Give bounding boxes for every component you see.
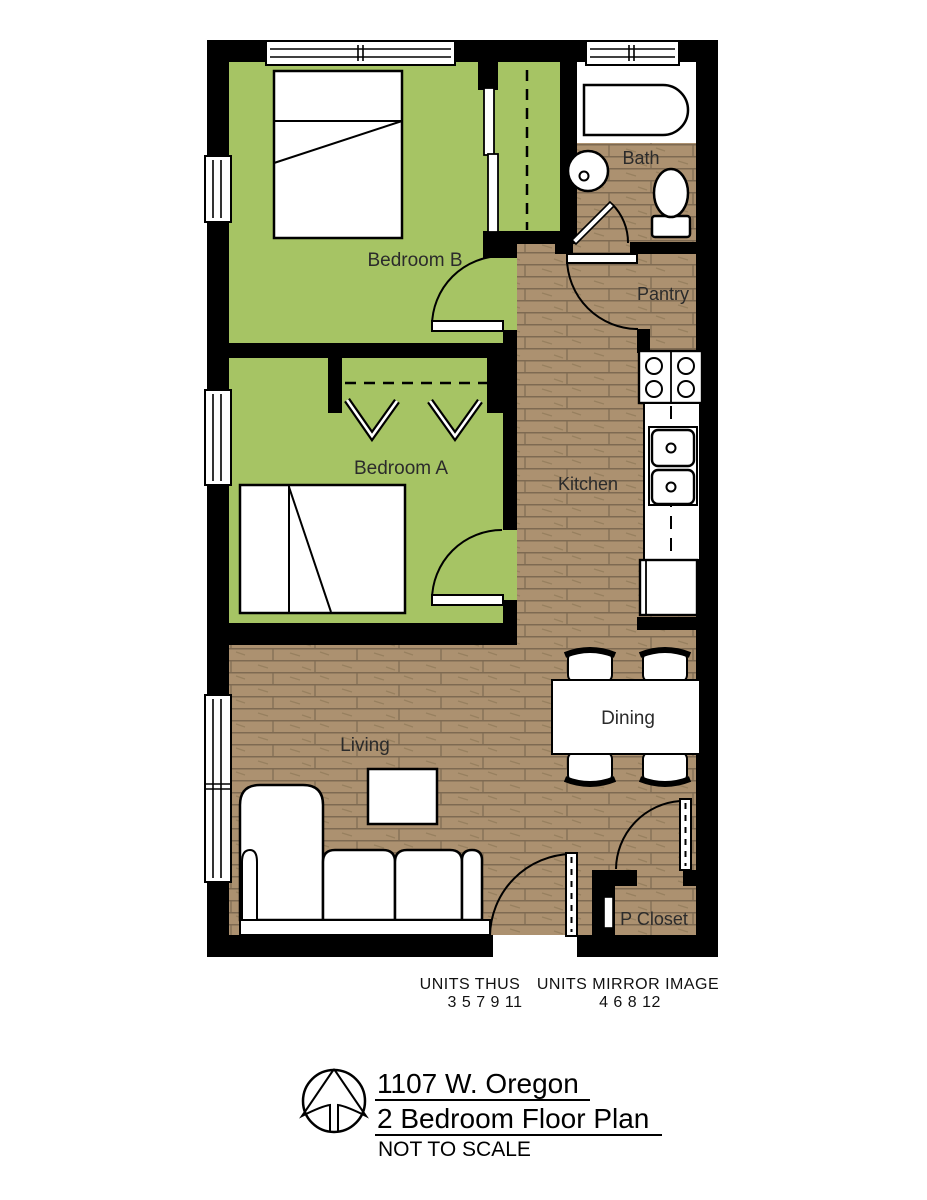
dining-chair-bottom-right [640, 752, 690, 784]
kitchen-label: Kitchen [558, 474, 618, 494]
wall-closet-b-stub [478, 62, 498, 90]
logo [302, 1069, 366, 1132]
title-scale-note: NOT TO SCALE [378, 1138, 531, 1161]
living-label: Living [340, 735, 390, 756]
bathtub [584, 85, 688, 135]
bath-label: Bath [622, 148, 659, 168]
wall-closet-a-west-stub [328, 358, 342, 413]
kitchen-sink [649, 427, 697, 505]
bedroom-b-closet-slider-panel-1 [484, 88, 494, 155]
wall-pantry-stub [637, 329, 650, 353]
units-thus-label: UNITS THUS [420, 976, 521, 993]
title-address: 1107 W. Oregon [377, 1068, 579, 1099]
sofa-cushion-1 [323, 850, 395, 920]
kitchen-fixtures [639, 351, 702, 615]
wall-bottom-left [207, 935, 493, 957]
sofa-arm-right [462, 850, 482, 920]
bedroom-b-closet-slider-panel-2 [488, 154, 498, 232]
wall-closet-top [615, 870, 637, 886]
bath-sink [568, 151, 608, 191]
closet-door-panel [604, 897, 613, 928]
window-bath-top [586, 41, 679, 65]
wall-bedroom-a-south [229, 623, 517, 645]
unit-annotations: UNITS THUS UNITS MIRROR IMAGE 3 5 7 9 11… [420, 976, 720, 1011]
wall-bedroom-b-east-lower [503, 330, 517, 343]
title-plan-name: 2 Bedroom Floor Plan [377, 1103, 649, 1134]
window-bedroom-b-left [205, 156, 231, 222]
floor-plan-drawing: Bedroom B Bedroom A Bath Pantry Kitchen … [0, 0, 927, 1200]
pantry-label: Pantry [637, 284, 689, 304]
wall-bedroom-a-east-lower [503, 600, 517, 623]
units-mirror-label: UNITS MIRROR IMAGE [537, 976, 719, 993]
wall-closet-b-east [560, 62, 577, 231]
title-block: 1107 W. Oregon 2 Bedroom Floor Plan NOT … [302, 1068, 662, 1161]
sofa-base [240, 920, 490, 935]
coffee-table [368, 769, 437, 824]
dining-chair-top-left [565, 650, 615, 682]
wall-bath-south-west [555, 242, 573, 254]
bed-bedroom-b [274, 71, 402, 238]
floor-plan-page: Bedroom B Bedroom A Bath Pantry Kitchen … [0, 0, 927, 1200]
p-closet-label: P Closet [620, 909, 688, 929]
wall-closet-a-east-stub [487, 358, 503, 413]
toilet [652, 169, 690, 237]
dining-label: Dining [601, 708, 655, 729]
wall-bath-south-east [630, 242, 718, 254]
stove [639, 351, 702, 403]
window-bedroom-b-top [266, 41, 455, 65]
wall-bedroom-divider [229, 343, 517, 358]
window-living-left [205, 695, 231, 882]
wall-bottom-right [577, 935, 718, 957]
units-thus-numbers: 3 5 7 9 11 [448, 994, 523, 1011]
wall-kitchen-south [637, 617, 718, 630]
dining-chair-top-right [640, 650, 690, 682]
bed-bedroom-a [240, 485, 405, 613]
kitchen-cabinet [640, 560, 697, 615]
wall-bedroom-a-east-upper [503, 358, 517, 530]
sofa-cushion-2 [395, 850, 462, 920]
wall-closet-top-stub [683, 870, 697, 886]
bedroom-b-label: Bedroom B [367, 250, 462, 271]
units-mirror-numbers: 4 6 8 12 [599, 994, 661, 1011]
bedroom-a-label: Bedroom A [354, 458, 448, 479]
window-bedroom-a-left [205, 390, 231, 485]
sofa-chaise-arm [242, 850, 257, 920]
dining-chair-bottom-left [565, 752, 615, 784]
